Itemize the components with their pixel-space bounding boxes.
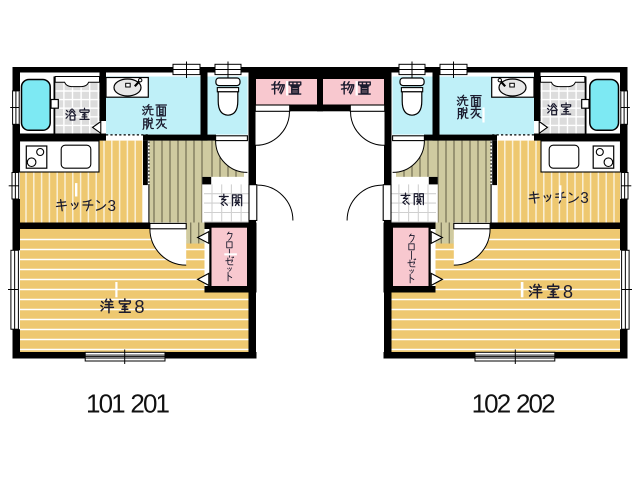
svg-text:101 201: 101 201 — [86, 389, 170, 419]
svg-text:8: 8 — [563, 281, 573, 302]
svg-text:8: 8 — [134, 296, 144, 317]
svg-text:3: 3 — [580, 190, 589, 207]
svg-text:3: 3 — [108, 198, 117, 215]
svg-text:102 202: 102 202 — [472, 389, 556, 419]
